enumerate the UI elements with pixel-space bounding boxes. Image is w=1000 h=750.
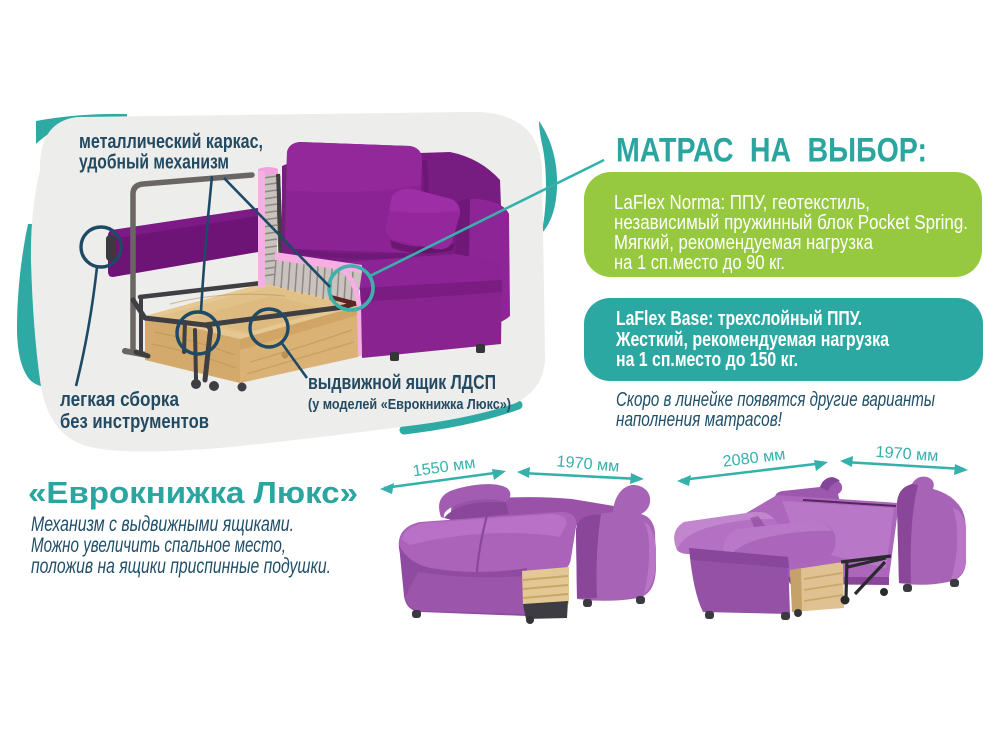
svg-text:положив на ящики приспинные по: положив на ящики приспинные подушки. bbox=[31, 555, 331, 578]
svg-text:удобный механизм: удобный механизм bbox=[79, 152, 229, 174]
svg-text:LaFlex Norma: ППУ, геотекстиль: LaFlex Norma: ППУ, геотекстиль, bbox=[614, 192, 870, 214]
svg-text:(у моделей «Еврокнижка Люкс»): (у моделей «Еврокнижка Люкс») bbox=[308, 397, 511, 413]
svg-text:МАТРАС НА ВЫБОР:: МАТРАС НА ВЫБОР: bbox=[616, 132, 927, 170]
svg-text:Механизм с выдвижными ящиками.: Механизм с выдвижными ящиками. bbox=[31, 513, 294, 536]
svg-text:выдвижной ящик ЛДСП: выдвижной ящик ЛДСП bbox=[308, 372, 496, 394]
svg-text:Можно увеличить спальное место: Можно увеличить спальное место, bbox=[31, 534, 286, 557]
svg-text:«Еврокнижка Люкс»: «Еврокнижка Люкс» bbox=[28, 475, 358, 510]
svg-text:легкая сборка: легкая сборка bbox=[60, 389, 180, 411]
svg-text:Жесткий, рекомендуемая нагрузк: Жесткий, рекомендуемая нагрузка bbox=[615, 329, 890, 351]
svg-text:наполнения матрасов!: наполнения матрасов! bbox=[616, 409, 782, 431]
svg-text:без инструментов: без инструментов bbox=[60, 411, 209, 433]
svg-text:на 1 сп.место до 150 кг.: на 1 сп.место до 150 кг. bbox=[616, 349, 798, 371]
svg-text:металлический каркас,: металлический каркас, bbox=[79, 131, 263, 153]
svg-text:LaFlex Base: трехслойный ППУ.: LaFlex Base: трехслойный ППУ. bbox=[616, 308, 862, 330]
svg-text:Скоро в линейке появятся други: Скоро в линейке появятся другие варианты bbox=[616, 389, 935, 411]
svg-text:Мягкий, рекомендуемая нагрузка: Мягкий, рекомендуемая нагрузка bbox=[614, 232, 874, 254]
svg-text:на 1 сп.место до 90 кг.: на 1 сп.место до 90 кг. bbox=[614, 252, 785, 274]
svg-text:независимый пружинный блок Poc: независимый пружинный блок Pocket Spring… bbox=[614, 212, 968, 234]
